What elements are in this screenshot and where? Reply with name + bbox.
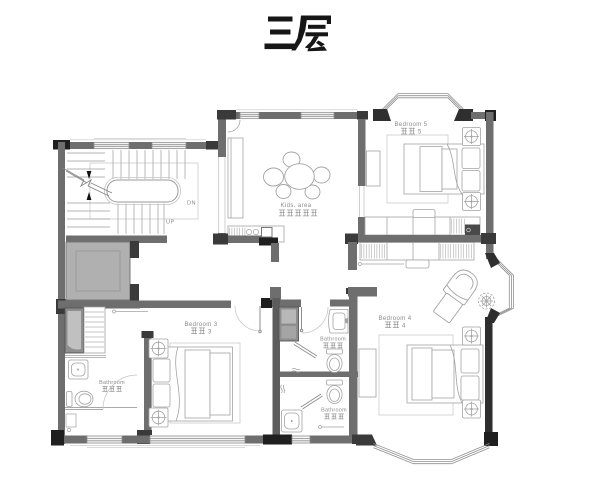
svg-text:Bathroom: Bathroom — [320, 337, 346, 343]
svg-text:Kids. area: Kids. area — [280, 203, 311, 209]
svg-text:DN: DN — [187, 201, 196, 207]
svg-text:Bedroom 4: Bedroom 4 — [379, 316, 412, 322]
svg-text:UP: UP — [166, 220, 175, 226]
svg-text:Bedroom 3: Bedroom 3 — [185, 322, 218, 328]
svg-text:Bathroom: Bathroom — [99, 380, 125, 386]
svg-text:Bathroom: Bathroom — [321, 408, 347, 414]
svg-text:Bedroom 5: Bedroom 5 — [395, 122, 428, 128]
